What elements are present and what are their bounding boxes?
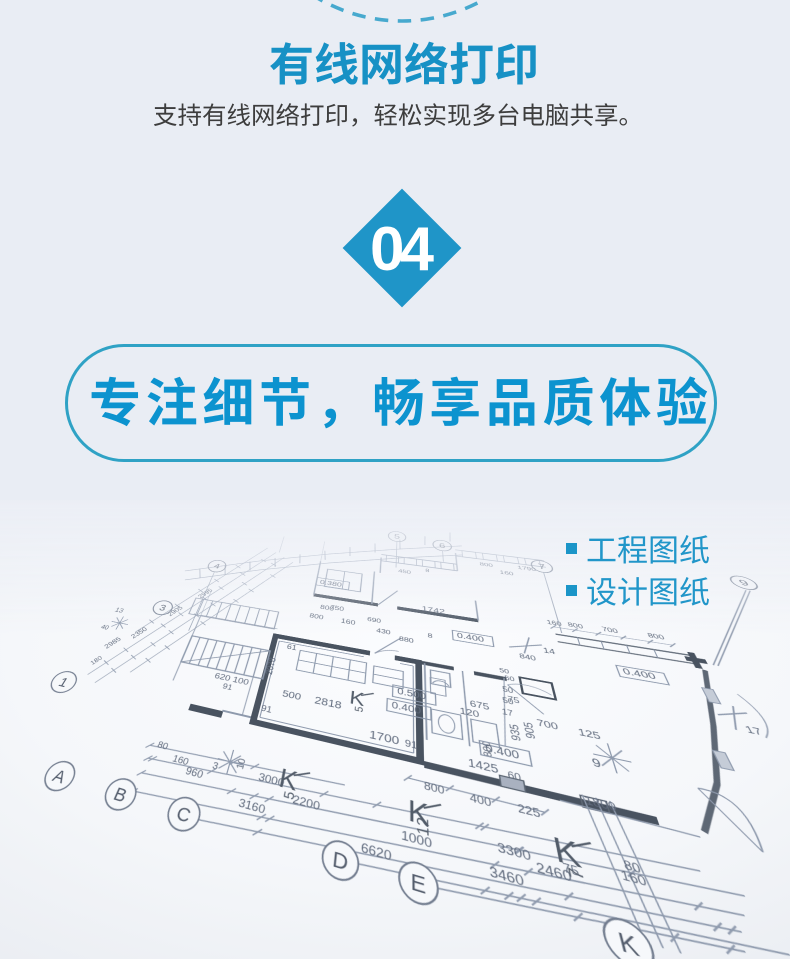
svg-text:840: 840 <box>519 652 538 662</box>
svg-text:0.400: 0.400 <box>485 744 521 764</box>
svg-text:700: 700 <box>536 718 560 733</box>
svg-text:2818: 2818 <box>314 695 344 713</box>
svg-text:D: D <box>331 845 349 877</box>
svg-text:91: 91 <box>222 682 235 692</box>
svg-text:50: 50 <box>504 673 517 683</box>
svg-text:3160: 3160 <box>237 797 267 818</box>
svg-text:91: 91 <box>260 704 274 717</box>
svg-text:3: 3 <box>211 760 220 772</box>
svg-text:91: 91 <box>405 738 418 753</box>
svg-text:160: 160 <box>619 868 650 890</box>
svg-text:225: 225 <box>517 803 543 823</box>
svg-text:400: 400 <box>469 792 493 811</box>
svg-text:10: 10 <box>234 757 247 771</box>
svg-text:880: 880 <box>399 635 415 644</box>
svg-text:1800: 1800 <box>584 795 620 817</box>
svg-text:17: 17 <box>501 707 515 718</box>
svg-text:180: 180 <box>89 654 105 666</box>
svg-text:E: E <box>411 866 428 900</box>
svg-text:0.400: 0.400 <box>622 668 659 683</box>
svg-text:14: 14 <box>542 647 557 658</box>
svg-text:17: 17 <box>743 725 766 740</box>
svg-text:9: 9 <box>591 758 603 773</box>
svg-text:1: 1 <box>56 674 73 690</box>
svg-text:3460: 3460 <box>489 865 526 892</box>
svg-text:960: 960 <box>183 766 204 783</box>
svg-text:500: 500 <box>281 690 302 704</box>
svg-text:125: 125 <box>577 727 603 743</box>
svg-text:2985: 2985 <box>103 635 123 649</box>
svg-text:6620: 6620 <box>360 841 391 866</box>
svg-text:3300: 3300 <box>497 841 533 866</box>
svg-text:61: 61 <box>286 643 298 653</box>
svg-text:80: 80 <box>156 740 170 752</box>
